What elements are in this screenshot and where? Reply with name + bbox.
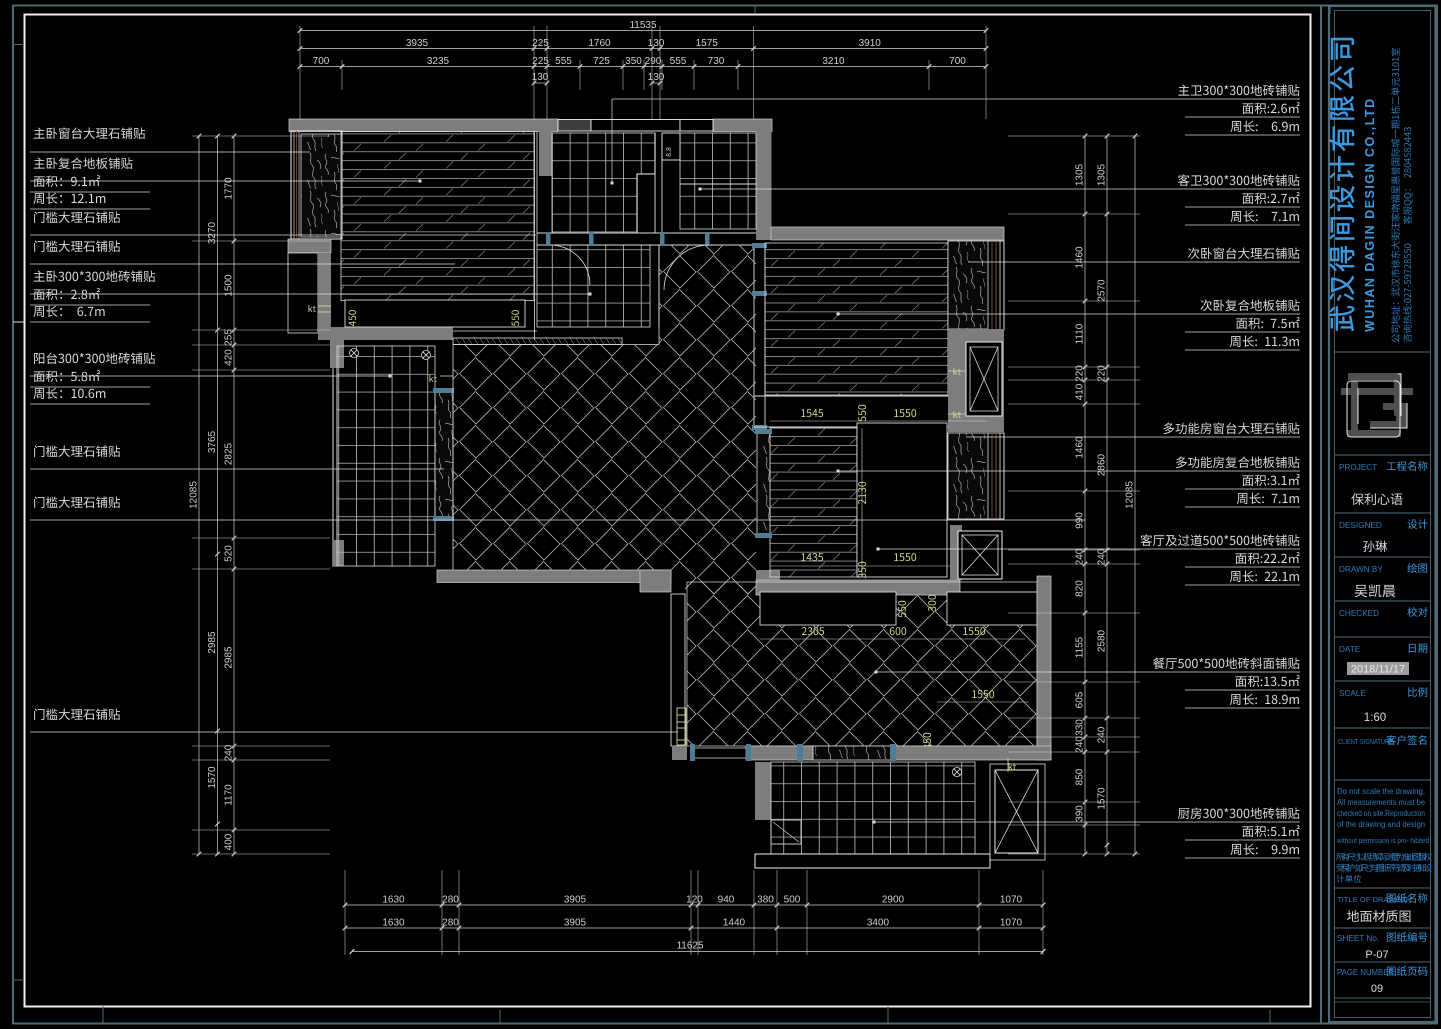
svg-text:2985: 2985 [224, 646, 235, 669]
svg-text:850: 850 [1075, 768, 1086, 785]
svg-text:2018/11/17: 2018/11/17 [1351, 664, 1405, 676]
svg-text:SHEET No.: SHEET No. [1337, 934, 1379, 943]
svg-text:3210: 3210 [822, 56, 845, 67]
svg-text:1630: 1630 [382, 895, 405, 906]
svg-text:2570: 2570 [1097, 279, 1108, 302]
svg-text:330: 330 [1075, 719, 1086, 736]
svg-text:725: 725 [593, 56, 610, 67]
svg-text:2900: 2900 [882, 895, 905, 906]
svg-text:3765: 3765 [207, 430, 218, 453]
svg-text:240: 240 [1075, 736, 1086, 753]
svg-text:12085: 12085 [189, 481, 200, 509]
svg-text:280: 280 [442, 918, 459, 929]
svg-text:1170: 1170 [224, 784, 235, 806]
svg-text:PAGE NUMBER: PAGE NUMBER [1337, 968, 1394, 977]
svg-text:2985: 2985 [207, 631, 218, 654]
svg-text:1460: 1460 [1075, 246, 1086, 269]
svg-text:checked on site.Reproduction: checked on site.Reproduction [1337, 809, 1425, 818]
svg-text:1460: 1460 [1075, 436, 1086, 459]
svg-text:1570: 1570 [207, 766, 218, 789]
svg-text:3270: 3270 [207, 221, 218, 244]
svg-text:605: 605 [1075, 691, 1086, 708]
svg-text:1760: 1760 [588, 38, 611, 49]
svg-text:1070: 1070 [1000, 895, 1023, 906]
svg-text:1500: 1500 [224, 274, 235, 297]
svg-text:1440: 1440 [723, 918, 746, 929]
svg-text:WUHAN DAGIN DESIGN CO.,LTD: WUHAN DAGIN DESIGN CO.,LTD [1363, 97, 1377, 332]
svg-text:290: 290 [645, 56, 662, 67]
svg-text:of the drawing and design: of the drawing and design [1337, 820, 1425, 829]
svg-text:1110: 1110 [1075, 323, 1086, 344]
svg-text:420: 420 [224, 349, 235, 366]
svg-text:520: 520 [224, 545, 235, 562]
svg-text:400: 400 [224, 833, 235, 850]
svg-text:Do not scale the drawing,: Do not scale the drawing, [1337, 787, 1425, 796]
svg-text:240: 240 [1097, 548, 1108, 565]
svg-text:DRAWN BY: DRAWN BY [1339, 565, 1383, 574]
svg-text:11625: 11625 [676, 941, 704, 952]
svg-text:1305: 1305 [1097, 163, 1108, 186]
svg-text:1070: 1070 [1000, 918, 1023, 929]
svg-text:3235: 3235 [427, 56, 450, 67]
svg-text:3905: 3905 [564, 895, 587, 906]
svg-text:P-07: P-07 [1365, 949, 1388, 961]
svg-text:380: 380 [757, 895, 774, 906]
svg-text:555: 555 [670, 56, 687, 67]
svg-text:220: 220 [1097, 365, 1108, 382]
svg-text:820: 820 [1075, 580, 1086, 597]
svg-text:1570: 1570 [1097, 787, 1108, 810]
svg-text:3905: 3905 [564, 918, 587, 929]
svg-text:All measurements must be: All measurements must be [1337, 798, 1425, 807]
svg-text:130: 130 [648, 38, 665, 49]
svg-text:555: 555 [555, 56, 572, 67]
svg-text:130: 130 [532, 72, 549, 83]
svg-text:220: 220 [1075, 365, 1086, 382]
svg-text:09: 09 [1371, 983, 1383, 995]
svg-text:SCALE: SCALE [1339, 689, 1366, 698]
svg-text:2825: 2825 [224, 442, 235, 465]
svg-text:2580: 2580 [1097, 629, 1108, 652]
svg-text:1770: 1770 [224, 177, 235, 200]
svg-text:410: 410 [1075, 383, 1086, 400]
svg-text:PROJECT: PROJECT [1339, 463, 1377, 472]
svg-text:240: 240 [224, 744, 235, 761]
svg-text:390: 390 [1075, 805, 1086, 822]
svg-text:3935: 3935 [406, 38, 429, 49]
svg-text:350: 350 [625, 56, 642, 67]
svg-text:3400: 3400 [867, 918, 890, 929]
svg-text:11535: 11535 [629, 20, 657, 31]
svg-text:DATE: DATE [1339, 645, 1361, 654]
svg-text:1575: 1575 [696, 38, 719, 49]
svg-text:255: 255 [224, 329, 235, 346]
svg-text:500: 500 [784, 895, 801, 906]
svg-text:1:60: 1:60 [1364, 712, 1386, 724]
svg-text:1155: 1155 [1075, 636, 1086, 658]
svg-text:225: 225 [532, 56, 549, 67]
svg-text:730: 730 [708, 56, 725, 67]
svg-text:1305: 1305 [1075, 163, 1086, 186]
svg-text:12085: 12085 [1125, 481, 1136, 509]
svg-text:1630: 1630 [382, 918, 405, 929]
svg-text:CLIENT SIGNATURE: CLIENT SIGNATURE [1338, 737, 1393, 746]
svg-text:940: 940 [718, 895, 735, 906]
svg-text:3910: 3910 [859, 38, 882, 49]
svg-text:700: 700 [313, 56, 330, 67]
svg-text:2860: 2860 [1097, 453, 1108, 476]
svg-text:240: 240 [1075, 548, 1086, 565]
svg-text:700: 700 [949, 56, 966, 67]
svg-text:without permission is pro- hib: without permission is pro- hibited [1336, 836, 1429, 845]
svg-text:240: 240 [1097, 726, 1108, 743]
svg-text:CHECKED: CHECKED [1339, 609, 1379, 618]
svg-text:280: 280 [442, 895, 459, 906]
svg-text:DESIGNED: DESIGNED [1339, 521, 1382, 530]
svg-text:120: 120 [686, 895, 703, 906]
svg-text:225: 225 [532, 38, 549, 49]
